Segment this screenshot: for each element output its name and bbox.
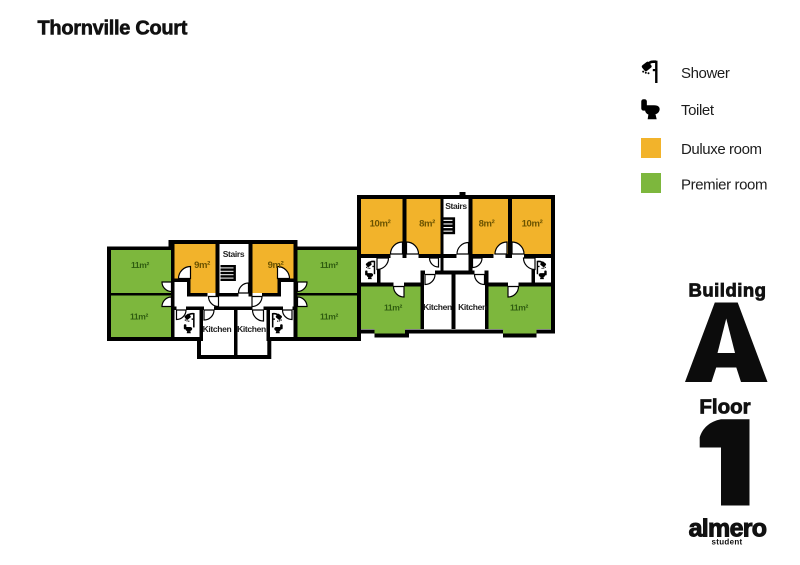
svg-text:Stairs: Stairs	[223, 249, 245, 259]
svg-text:11m²: 11m²	[384, 303, 402, 313]
svg-text:8m²: 8m²	[419, 219, 435, 230]
svg-text:Floor: Floor	[699, 396, 750, 419]
svg-text:11m²: 11m²	[131, 260, 149, 270]
svg-text:Thornville Court: Thornville Court	[38, 18, 188, 40]
svg-text:8m²: 8m²	[479, 219, 495, 230]
svg-text:Kitchen: Kitchen	[423, 302, 452, 312]
svg-text:Building: Building	[689, 280, 767, 301]
svg-text:11m²: 11m²	[510, 303, 528, 313]
svg-text:11m²: 11m²	[320, 260, 338, 270]
svg-text:9m²: 9m²	[194, 260, 210, 271]
svg-text:Shower: Shower	[681, 65, 730, 82]
svg-text:10m²: 10m²	[370, 219, 391, 230]
svg-text:Kitchen: Kitchen	[458, 302, 487, 312]
svg-text:student: student	[712, 538, 743, 547]
svg-text:11m²: 11m²	[130, 312, 148, 322]
svg-text:Premier room: Premier room	[681, 177, 767, 194]
svg-text:11m²: 11m²	[320, 312, 338, 322]
svg-text:Stairs: Stairs	[445, 201, 467, 211]
svg-text:Kitchen: Kitchen	[237, 324, 266, 334]
svg-text:Duluxe room: Duluxe room	[681, 141, 762, 158]
svg-text:Kitchen: Kitchen	[203, 324, 232, 334]
svg-text:10m²: 10m²	[522, 219, 543, 230]
svg-text:9m²: 9m²	[268, 260, 284, 271]
svg-text:Toilet: Toilet	[681, 102, 715, 119]
